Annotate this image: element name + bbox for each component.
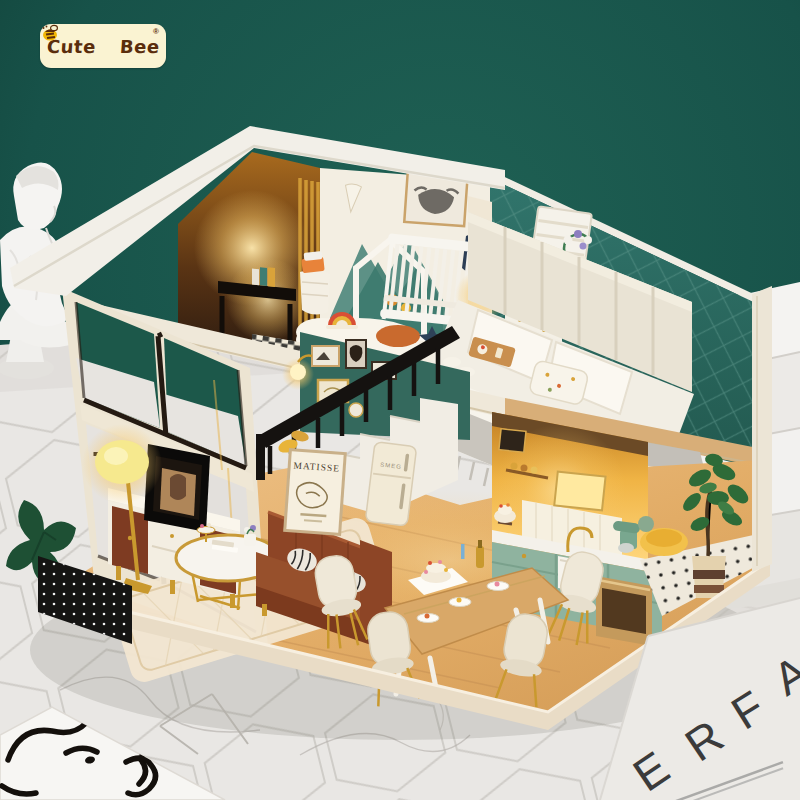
- scene-illustration: SMEG: [0, 0, 800, 800]
- oven: [596, 576, 652, 646]
- matisse-poster: MATISSE: [283, 448, 347, 536]
- kitchen-art: [499, 429, 526, 452]
- brand-name-suffix: Bee: [119, 36, 160, 57]
- orange-cushion: [376, 325, 420, 347]
- registered-trademark: ®: [153, 27, 159, 36]
- slipper: [443, 357, 461, 367]
- retro-fridge: SMEG: [365, 442, 416, 527]
- brand-logo: Cute Bee ®: [40, 24, 166, 68]
- right-wall-frame: [752, 286, 772, 572]
- bee-icon: [98, 37, 118, 55]
- product-photo: SMEG: [0, 0, 800, 800]
